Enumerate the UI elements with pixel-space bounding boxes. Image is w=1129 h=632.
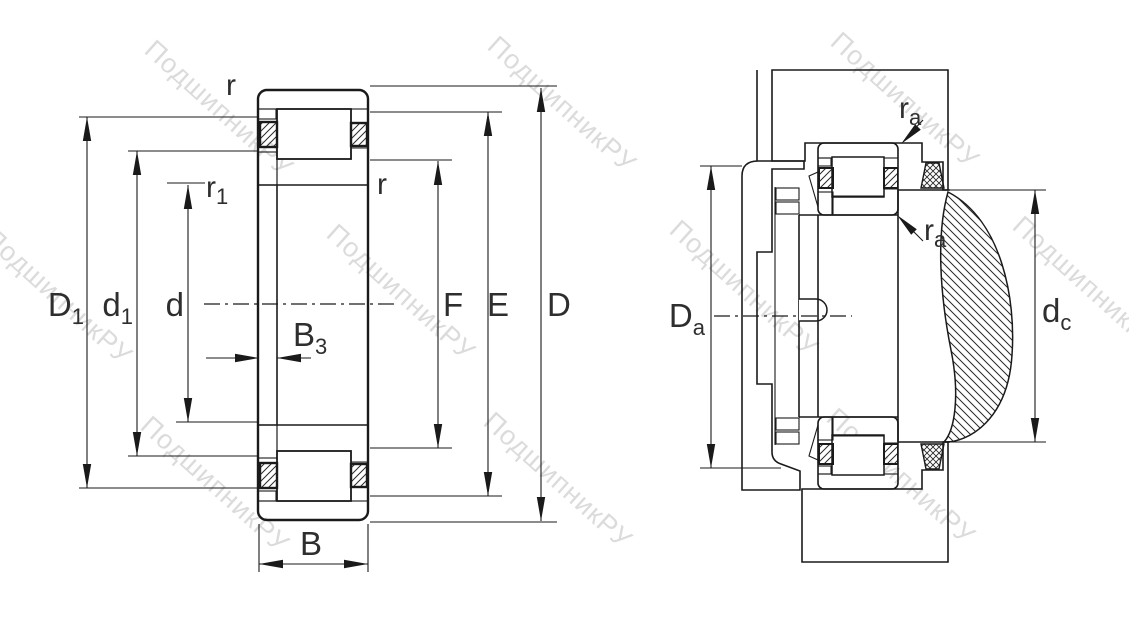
label-E: E	[487, 286, 509, 323]
label-r-right: r	[377, 168, 387, 201]
dimension-d: d	[166, 183, 258, 422]
outer-ring-lip-bottom	[258, 491, 276, 501]
label-D: D	[547, 286, 571, 323]
cage-bottom-left	[260, 463, 277, 488]
roller	[832, 157, 884, 197]
left-view-bearing-cross-section: D1 d1 d F	[48, 69, 571, 572]
outer-ring-top	[818, 143, 898, 158]
label-d: d	[166, 286, 184, 323]
seal-lip-top-1	[776, 188, 799, 200]
outer-ring-lip-top	[258, 109, 276, 119]
roller-bottom	[277, 451, 351, 501]
watermark-text: ПодшипникРУ	[482, 30, 642, 178]
seal-lip-bottom-2	[776, 432, 799, 444]
angle-ring	[818, 192, 833, 215]
cage-right	[884, 444, 898, 464]
label-d1: d1	[102, 286, 133, 329]
outer-ring-lip	[818, 158, 831, 166]
angle-ring-rib-bottom	[809, 425, 818, 460]
mounted-bearing-top-section	[818, 143, 898, 215]
cage-top-right	[351, 123, 367, 146]
cage-top-left	[260, 122, 277, 147]
right-view-mounting-arrangement: Da dc ra ra	[669, 70, 1071, 562]
label-dc: dc	[1042, 292, 1071, 335]
retaining-ring-top	[921, 163, 944, 188]
shaft-center-hole	[799, 299, 827, 321]
watermark-text: ПодшипникРУ	[1007, 210, 1129, 358]
roller-top	[277, 109, 351, 159]
outer-ring-lip	[818, 466, 831, 474]
angle-ring-bottom	[258, 425, 277, 458]
shaft-break-section	[941, 192, 1013, 442]
label-r-top: r	[226, 69, 236, 102]
label-F: F	[443, 286, 463, 323]
dimension-B3: B3	[206, 316, 327, 362]
watermark-text: ПодшипникРУ	[139, 34, 299, 182]
cage-right	[884, 168, 898, 188]
cage-left	[819, 444, 833, 464]
label-D1: D1	[48, 286, 84, 329]
watermark-text: ПодшипникРУ	[478, 406, 638, 554]
seal-lip-top-2	[776, 202, 799, 214]
outer-ring-top	[258, 90, 368, 109]
cage-bottom-right	[351, 464, 367, 487]
label-r1: r1	[206, 171, 228, 209]
bore-lines	[258, 185, 368, 425]
cage-left	[819, 168, 833, 188]
seal-lip-bottom-1	[776, 418, 799, 430]
bearing-technical-drawing: ПодшипникРУ ПодшипникРУ ПодшипникРУ Подш…	[0, 0, 1129, 632]
label-B: B	[300, 525, 322, 562]
roller	[832, 435, 884, 475]
watermark-text: ПодшипникРУ	[664, 214, 824, 362]
retaining-ring-bottom	[921, 444, 944, 469]
drawing-canvas: ПодшипникРУ ПодшипникРУ ПодшипникРУ Подш…	[0, 0, 1129, 632]
label-B3: B3	[293, 316, 327, 359]
label-Da: Da	[669, 297, 706, 340]
angle-ring-rib-top	[809, 172, 818, 207]
leader-ra-bottom: ra	[897, 214, 947, 252]
